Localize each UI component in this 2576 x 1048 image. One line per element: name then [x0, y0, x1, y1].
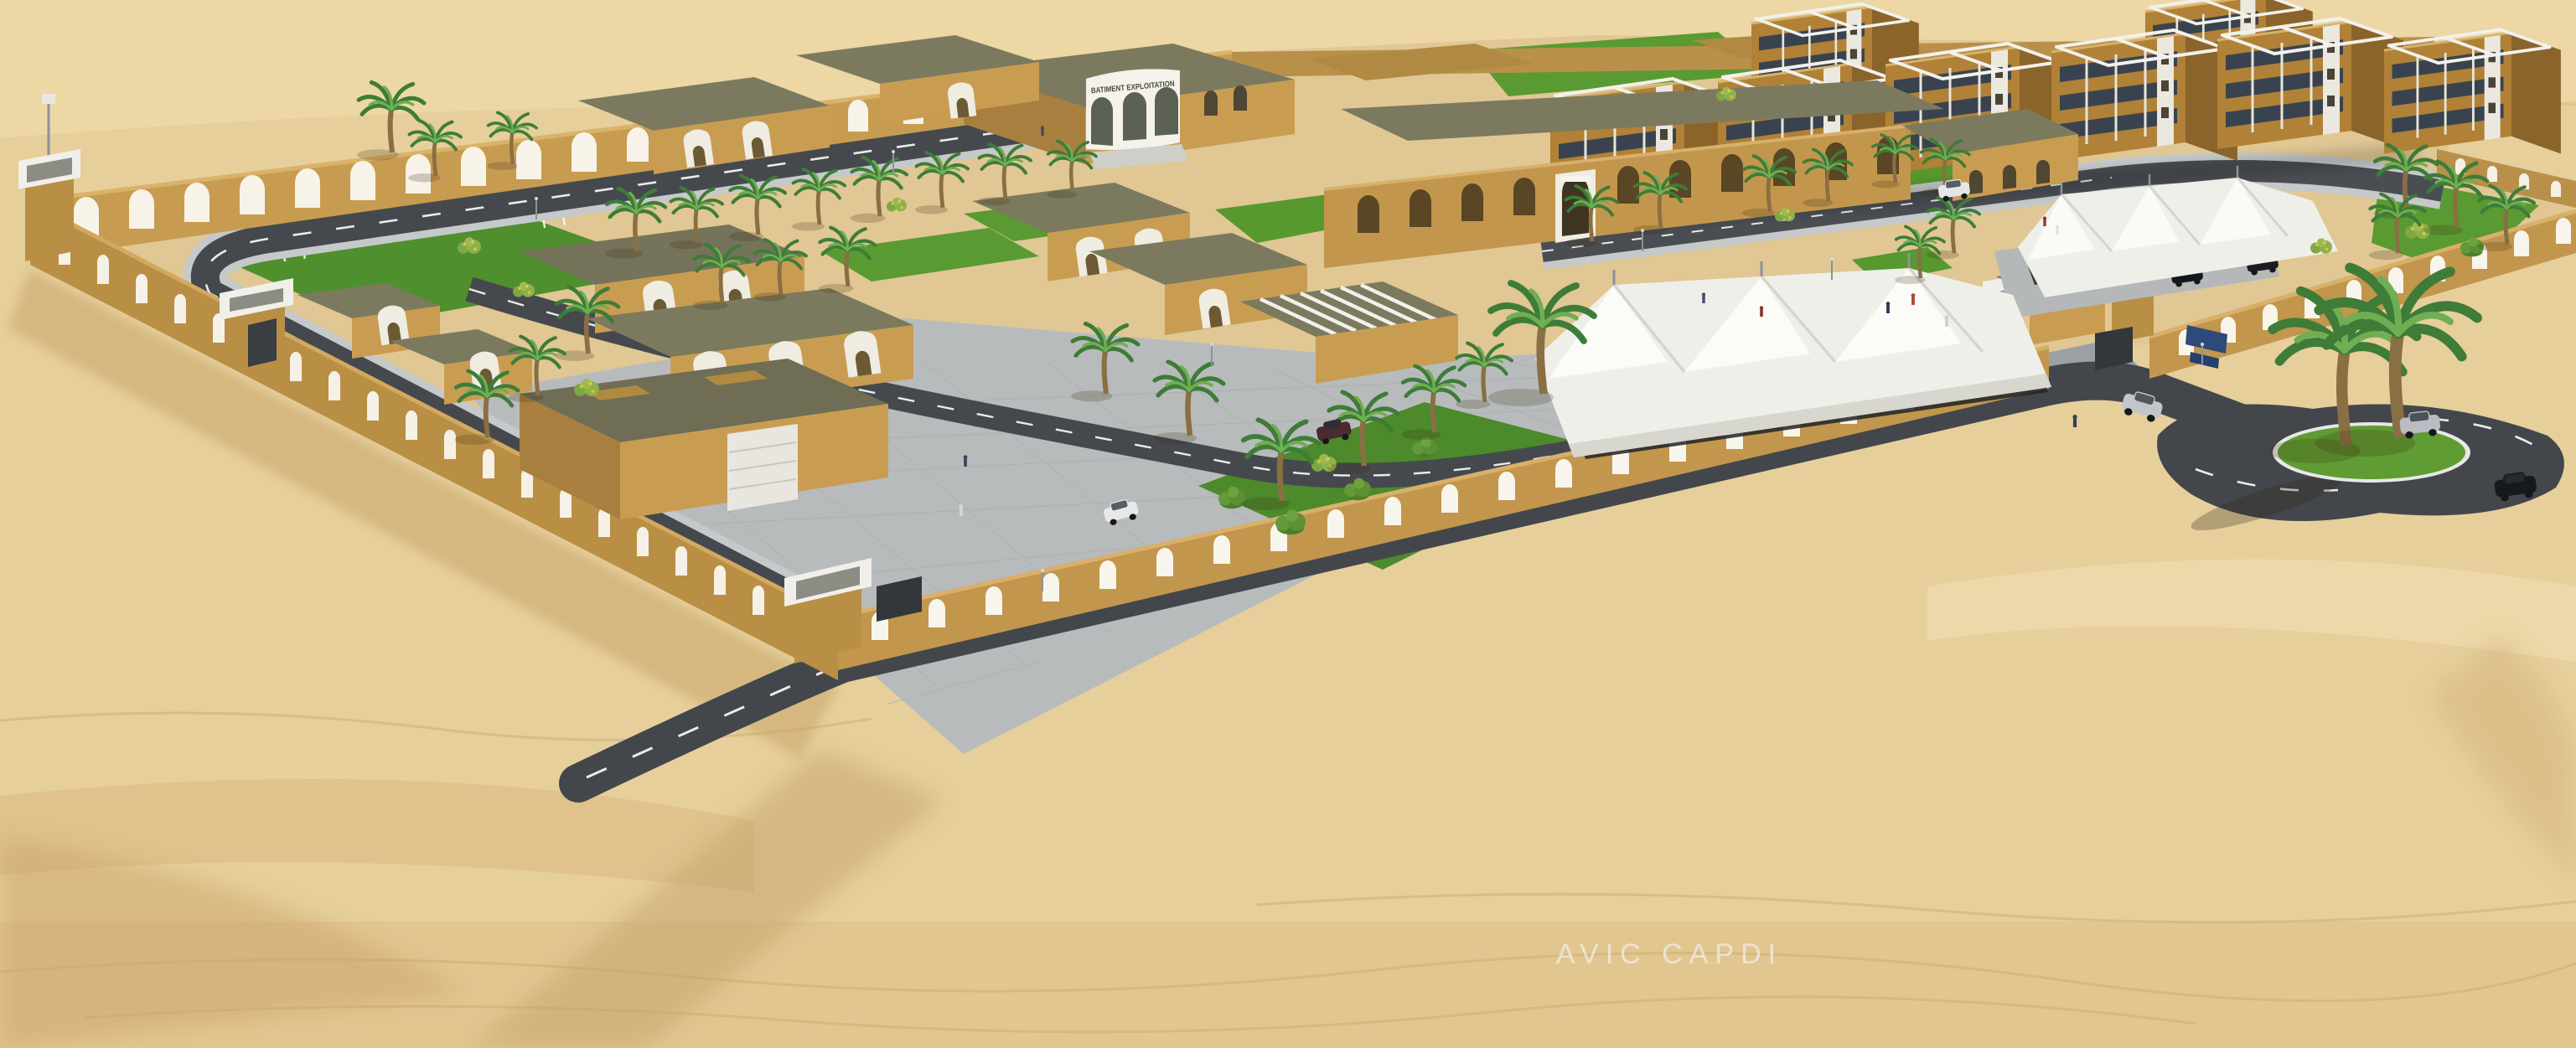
apartment-block-4 — [2051, 30, 2237, 161]
garage-door — [727, 424, 798, 511]
apartment-block-5 — [2217, 18, 2403, 149]
apartment-block-6 — [2384, 29, 2561, 153]
watermark: AVIC CAPDI — [1556, 938, 1782, 970]
architectural-rendering: BATIMENT EXPLOITATION — [0, 0, 2576, 1048]
